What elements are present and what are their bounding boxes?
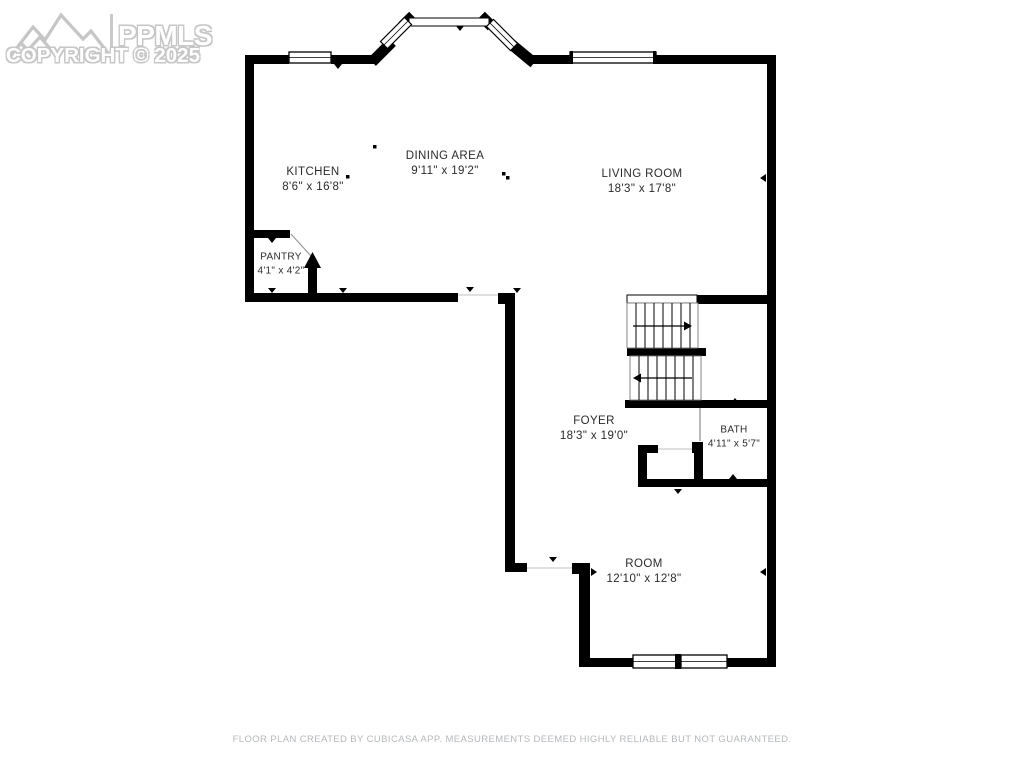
tick (549, 557, 557, 562)
fixture-mark (506, 176, 510, 180)
room-name: LIVING ROOM (601, 167, 682, 182)
wall-top-d (656, 55, 776, 64)
tick (268, 288, 276, 293)
room-dimensions: 18'3" x 19'0" (560, 429, 628, 444)
room-name: DINING AREA (406, 149, 485, 164)
room-dimensions: 18'3" x 17'8" (601, 182, 682, 197)
footer-disclaimer: FLOOR PLAN CREATED BY CUBICASA APP. MEAS… (0, 734, 1024, 745)
room-dimensions: 8'6" x 16'8" (282, 180, 343, 195)
staircase (627, 295, 701, 400)
room-label-bath: BATH 4'11" x 5'7" (708, 424, 760, 451)
wall-foyer-foot (505, 563, 527, 572)
room-label-room: ROOM 12'10" x 12'8" (606, 557, 681, 587)
watermark: PPMLS COPYRIGHT © 2025 (6, 8, 226, 70)
room-name: PANTRY (257, 251, 304, 265)
tick (591, 568, 597, 576)
room-dimensions: 9'11" x 19'2" (406, 164, 485, 179)
window-bay-left-diagonal (380, 17, 411, 48)
room-dimensions: 4'1" x 4'2" (257, 264, 304, 278)
wall-bath-bottom (638, 479, 776, 487)
tick (466, 287, 474, 292)
room-label-foyer: FOYER 18'3" x 19'0" (560, 414, 628, 444)
stairs-upper-flight (627, 303, 698, 348)
window-bay-center (409, 18, 489, 26)
room-name: BATH (708, 424, 760, 438)
room-dimensions: 4'11" x 5'7" (708, 437, 760, 451)
wall-kitchen-bottom (245, 293, 458, 302)
tick (334, 64, 342, 69)
wall-room-left (579, 563, 590, 667)
fixture-mark (373, 145, 377, 149)
wall-pantry-top (253, 230, 290, 238)
wall-top-a (245, 55, 289, 64)
wall-stairs-mid (627, 348, 706, 356)
window-bay-right-diagonal (486, 19, 517, 50)
stairs-lower-flight (630, 356, 701, 400)
floor-plan-page: KITCHEN 8'6" x 16'8" DINING AREA 9'11" x… (0, 0, 1024, 767)
wall-left (245, 55, 254, 302)
tick (674, 489, 682, 494)
stairs-top-landing (627, 295, 697, 303)
tick (456, 26, 464, 31)
tick (729, 474, 737, 479)
room-label-pantry: PANTRY 4'1" x 4'2" (257, 251, 304, 278)
wall-stairs-bottom (625, 400, 776, 408)
wall-stairs-top (697, 295, 767, 304)
room-name: ROOM (606, 557, 681, 572)
room-label-dining-area: DINING AREA 9'11" x 19'2" (406, 149, 485, 179)
fixture-mark (502, 172, 506, 176)
room-name: FOYER (560, 414, 628, 429)
tick (268, 238, 276, 243)
tick (760, 568, 766, 576)
wall-foyer-left (505, 293, 515, 572)
pantry-door-arrow (304, 252, 321, 268)
floor-plan-drawing (0, 0, 1024, 767)
room-label-kitchen: KITCHEN 8'6" x 16'8" (282, 165, 343, 195)
room-name: KITCHEN (282, 165, 343, 180)
wall-pantry-right (308, 266, 317, 293)
tick (513, 288, 521, 293)
room-label-living-room: LIVING ROOM 18'3" x 17'8" (601, 167, 682, 197)
wall-top-b (331, 55, 376, 64)
window-top-left (289, 52, 331, 63)
tick (339, 288, 347, 293)
room-dimensions: 12'10" x 12'8" (606, 572, 681, 587)
window-room-bottom (633, 654, 727, 669)
tick (760, 174, 766, 182)
window-top-right (570, 51, 656, 64)
watermark-copyright: COPYRIGHT © 2025 (6, 44, 200, 68)
fixture-mark (346, 175, 350, 179)
wall-right (767, 55, 776, 667)
